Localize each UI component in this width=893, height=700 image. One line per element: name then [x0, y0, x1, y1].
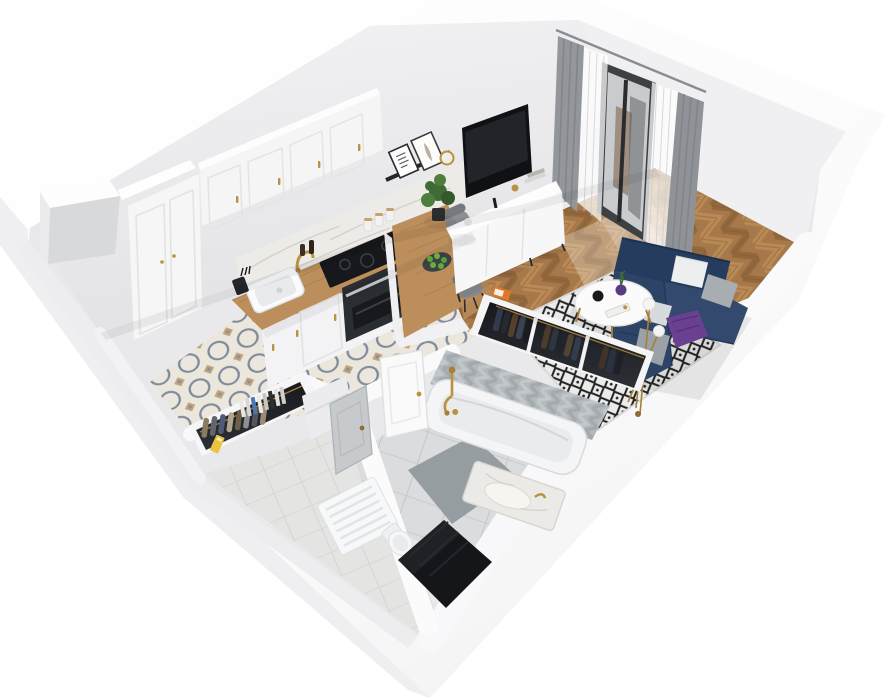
round-brass-mirror — [441, 152, 454, 165]
floorplan-render — [0, 0, 893, 700]
pepper-mill — [300, 244, 305, 256]
bathroom-door — [380, 350, 428, 438]
black-vase — [593, 291, 604, 302]
floorplan-svg — [0, 0, 893, 700]
shaft-column — [40, 181, 120, 264]
salt-mill — [309, 240, 314, 254]
